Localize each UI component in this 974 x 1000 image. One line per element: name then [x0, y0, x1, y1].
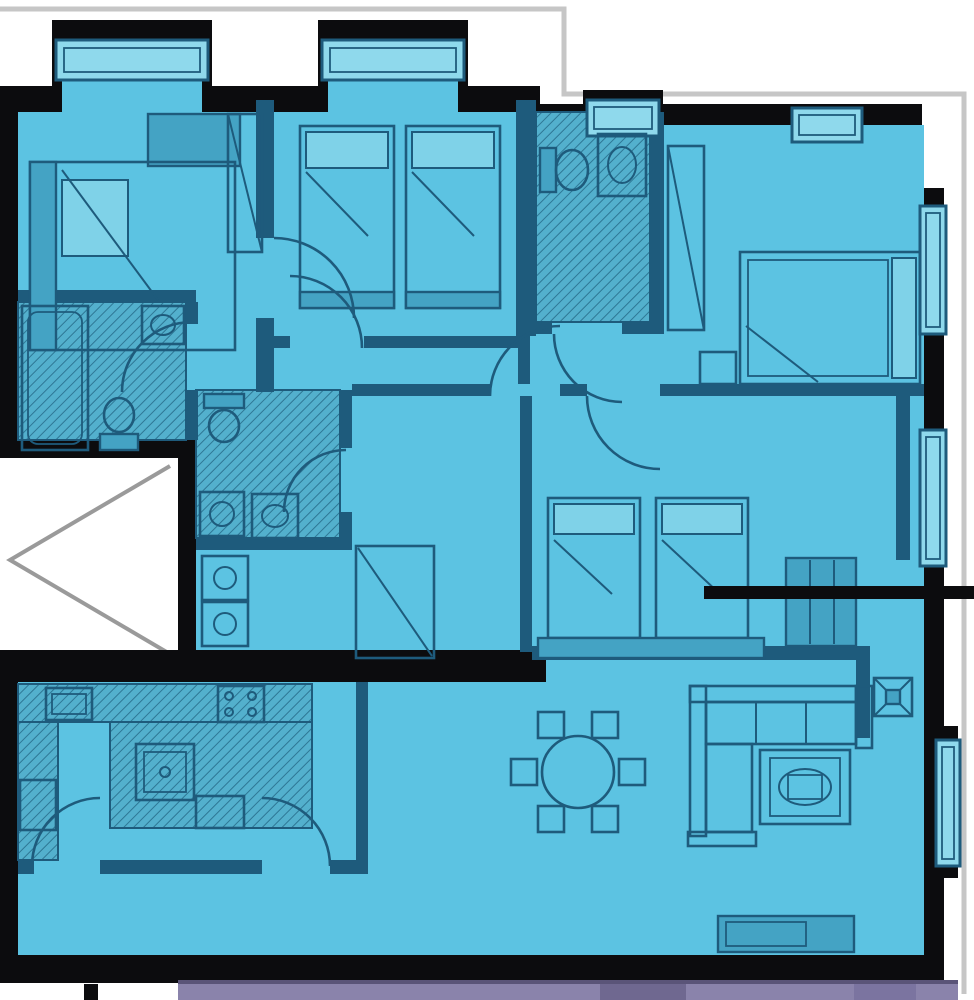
window-right-3: [936, 740, 960, 866]
lift-shaft-floor: [0, 458, 178, 662]
window-bay-mid: [322, 40, 464, 80]
floor-plan-page: [0, 0, 974, 1000]
toilet-tank: [204, 394, 244, 408]
headboard: [30, 162, 56, 350]
window-top-small: [587, 100, 659, 136]
floor-plan-drawing: [0, 0, 974, 1000]
kitchen-island: [110, 722, 312, 828]
toilet-tank: [540, 148, 556, 192]
neighbor-unit-strip: [84, 980, 958, 1000]
neighbor-wall-stub: [84, 984, 98, 1000]
plant-icon: [886, 690, 900, 704]
lift-shaft: [0, 440, 196, 680]
bed-bench: [538, 638, 764, 658]
leader-line: [704, 586, 974, 599]
pillow: [892, 258, 916, 378]
pillow-a: [306, 132, 388, 168]
pillow-a: [554, 504, 634, 534]
foot-b: [406, 292, 500, 308]
structural-wall-band: [0, 650, 546, 682]
kitchen-counter-top: [18, 684, 312, 722]
dresser: [786, 558, 856, 646]
window-right-1: [920, 206, 946, 334]
dresser: [148, 114, 240, 166]
toilet-tank: [100, 434, 138, 450]
pillow-b: [412, 132, 494, 168]
window-top-right: [792, 108, 862, 142]
window-right-2: [920, 430, 946, 566]
bathroom-top-floor: [536, 112, 650, 322]
window-bay-left: [56, 40, 208, 80]
pillow-b: [662, 504, 742, 534]
